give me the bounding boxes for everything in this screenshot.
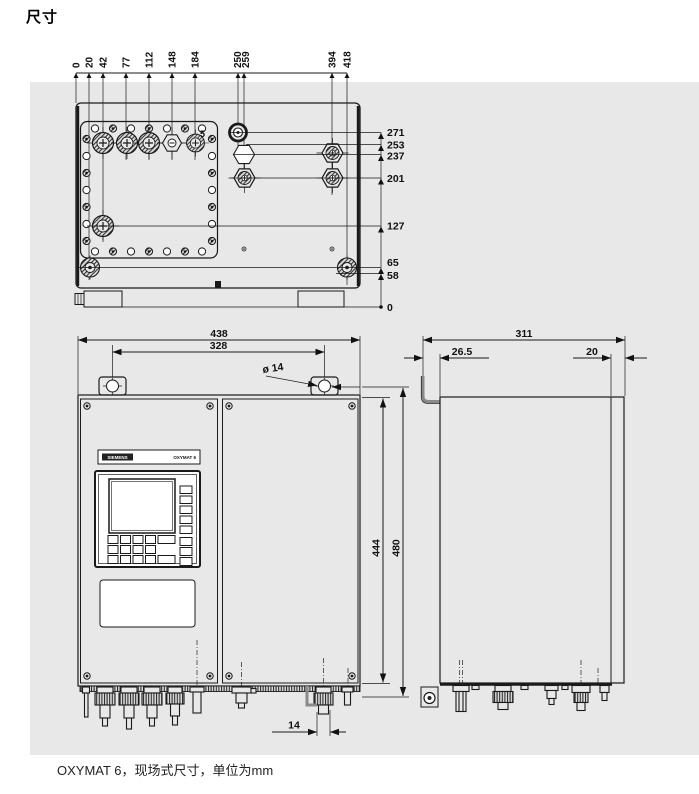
dim-hole-spacing: 328 [210, 340, 228, 352]
hmi-softkeys [180, 486, 192, 566]
gland-note: 5 [200, 129, 205, 139]
figure-caption: OXYMAT 6，现场式尺寸，单位为mm [57, 760, 273, 779]
dim-gland-offset: 14 [288, 720, 300, 732]
dim-x-394: 394 [328, 51, 339, 68]
dim-x-112: 112 [145, 51, 156, 68]
dim-overall-height: 480 [391, 539, 403, 557]
dim-x-42: 42 [99, 56, 110, 68]
dim-y-271: 271 [387, 127, 405, 139]
dim-x-259: 259 [241, 51, 252, 68]
dim-door-height: 444 [371, 539, 383, 557]
dim-x-184: 184 [191, 51, 202, 68]
dim-y-127: 127 [387, 221, 405, 233]
dimension-drawing: 0 20 42 77 112 148 184 250 259 394 418 [0, 0, 699, 794]
dim-x-20: 20 [85, 56, 96, 68]
dim-x-148: 148 [168, 51, 179, 68]
hmi-screen [109, 479, 175, 533]
dim-x-418: 418 [343, 51, 354, 68]
lower-wall-bracket [421, 687, 438, 707]
dim-x-0: 0 [72, 62, 83, 68]
nameplate: SIEMENS OXYMAT 6 [98, 450, 200, 464]
brand-label: SIEMENS [107, 455, 127, 460]
dim-overall-width: 438 [210, 328, 228, 340]
hmi-panel [95, 471, 200, 567]
top-dim-labels: 0 20 42 77 112 148 184 250 259 394 418 [72, 51, 354, 68]
top-dim-arrows [74, 73, 350, 78]
dim-y-65: 65 [387, 257, 399, 269]
dim-y-201: 201 [387, 173, 405, 185]
drawing-panel [30, 82, 699, 755]
dim-y-0: 0 [387, 302, 393, 314]
dim-x-77: 77 [122, 56, 133, 68]
model-label: OXYMAT 6 [173, 455, 196, 460]
dim-depth: 311 [516, 328, 533, 340]
dim-y-58: 58 [387, 270, 399, 282]
dim-bracket-offset: 26.5 [452, 346, 473, 358]
dim-y-237: 237 [387, 151, 405, 163]
door-plate [100, 580, 195, 627]
dim-rear-offset: 20 [586, 346, 598, 358]
